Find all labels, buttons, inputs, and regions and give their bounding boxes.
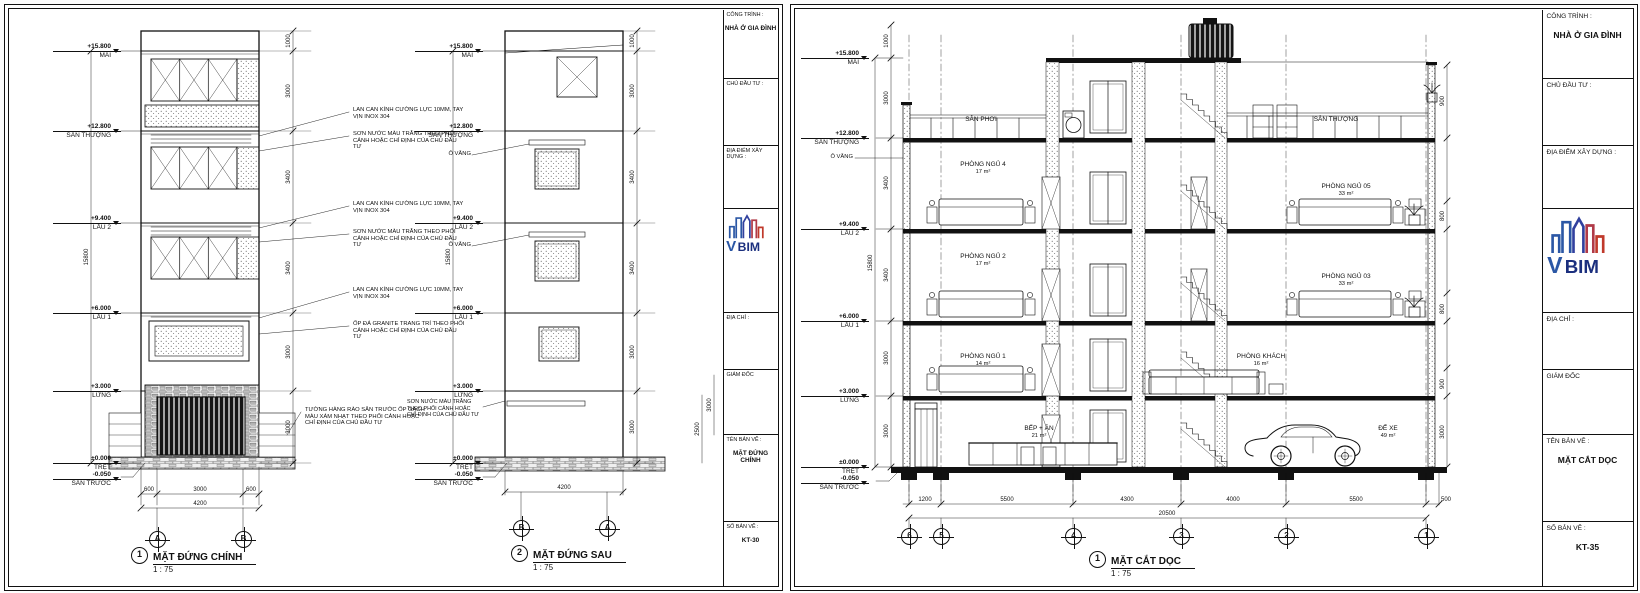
garage-door xyxy=(145,385,259,457)
section-linework: 1200 5500 4300 4000 5500 500 20500 1000 … xyxy=(791,5,1539,590)
tb-logo: V BIM xyxy=(724,209,778,313)
tb-drawing-name: TÊN BẢN VẼ : MẶT CẮT DỌC xyxy=(1543,435,1633,522)
room-label: BẾP + ĂN21 m² xyxy=(989,425,1089,440)
grid-bubble-b: B xyxy=(235,531,252,548)
svg-text:20500: 20500 xyxy=(1159,511,1176,517)
tb-drawing-no: SỐ BẢN VẼ : KT-30 xyxy=(724,522,778,585)
level-marker: +15.800MÁI xyxy=(53,43,121,60)
svg-text:800: 800 xyxy=(1440,303,1446,314)
vertical-dims-section xyxy=(872,22,1450,470)
note-railing: LAN CAN KÍNH CƯỜNG LỰC 10MM, TAY VỊN INO… xyxy=(353,107,465,120)
svg-text:3000: 3000 xyxy=(707,398,713,412)
svg-text:1200: 1200 xyxy=(918,497,932,503)
level-marker: -0.050SÂN TRƯỚC xyxy=(53,471,121,488)
svg-text:900: 900 xyxy=(1440,378,1446,389)
svg-text:1000: 1000 xyxy=(286,34,292,48)
fence-left xyxy=(109,413,141,457)
tb-location: ĐỊA ĐIỂM XÂY DỰNG : xyxy=(724,146,778,209)
window-band-terrace xyxy=(151,147,259,189)
room-label: ĐỂ XE49 m² xyxy=(1343,425,1433,440)
svg-text:3000: 3000 xyxy=(630,84,636,98)
level-marker: +6.000LẦU 1 xyxy=(801,313,869,330)
grid-bubble-a: A xyxy=(149,531,166,548)
grid-bubble-1: 1 xyxy=(1418,528,1435,545)
kitchen-counter xyxy=(969,443,1117,465)
drawing-canvas: { "tb": { "cong_trinh": "CÔNG TRÌNH :", … xyxy=(0,0,1640,593)
grid-bubble-4: 4 xyxy=(1065,528,1082,545)
tb-location: ĐỊA ĐIỂM XÂY DỰNG : xyxy=(1543,146,1633,209)
tb-client: CHỦ ĐẦU TƯ : xyxy=(724,79,778,146)
svg-text:1000: 1000 xyxy=(884,34,890,48)
svg-text:3400: 3400 xyxy=(884,176,890,190)
room-label: PHÒNG NGỦ 217 m² xyxy=(933,253,1033,268)
tb-project: CÔNG TRÌNH : NHÀ Ở GIA ĐÌNH xyxy=(1543,10,1633,79)
level-marker: +3.000LỬNG xyxy=(801,388,869,405)
level-marker: +9.400LẦU 2 xyxy=(53,215,121,232)
wall-left xyxy=(903,105,910,467)
svg-text:500: 500 xyxy=(1441,497,1452,503)
note-leaders xyxy=(259,112,349,435)
svg-text:3400: 3400 xyxy=(286,170,292,184)
wall-right xyxy=(1428,65,1435,467)
svg-text:4000: 4000 xyxy=(1226,497,1240,503)
bottom-dims-front xyxy=(138,467,262,531)
room-label: SÂN PHƠI xyxy=(931,116,1031,124)
svg-text:V: V xyxy=(726,238,736,253)
level-marker: +6.000LẦU 1 xyxy=(53,305,121,322)
tb-client: CHỦ ĐẦU TƯ : xyxy=(1543,79,1633,146)
level-marker: +3.000LỬNG xyxy=(53,383,121,400)
svg-text:4200: 4200 xyxy=(557,485,571,491)
core-wall xyxy=(1046,62,1059,467)
note-railing: LAN CAN KÍNH CƯỜNG LỰC 10MM, TAY VỊN INO… xyxy=(353,201,465,214)
room-label: PHÒNG KHÁCH16 m² xyxy=(1211,353,1311,368)
note-paint-rear: SƠN NƯỚC MÀU TRẮNG THEO PHỐI CẢNH HOẶC C… xyxy=(407,399,481,419)
tb-director: GIÁM ĐỐC xyxy=(1543,370,1633,435)
svg-text:5500: 5500 xyxy=(1000,497,1014,503)
grid-bubble-2: 2 xyxy=(1278,528,1295,545)
svg-text:3000: 3000 xyxy=(884,91,890,105)
washing-machine-icon xyxy=(1063,111,1084,138)
svg-text:3400: 3400 xyxy=(630,170,636,184)
tb-logo: V BIM xyxy=(1543,209,1633,313)
level-marker: +12.800SÂN THƯỢNG xyxy=(801,130,869,147)
svg-text:900: 900 xyxy=(1440,95,1446,106)
entry-gate xyxy=(915,403,937,467)
elevator-wall xyxy=(1132,62,1145,467)
grid-bubble-3: 3 xyxy=(1173,528,1190,545)
title-block: CÔNG TRÌNH : NHÀ Ở GIA ĐÌNH CHỦ ĐẦU TƯ :… xyxy=(723,10,778,586)
elevation-rear-drawing xyxy=(450,28,714,520)
svg-text:BIM: BIM xyxy=(737,240,759,253)
granite-panel xyxy=(149,317,251,361)
desk-symbols xyxy=(1405,199,1425,317)
stair-wall xyxy=(1215,62,1227,467)
level-marker: +12.800SÂN THƯỢNG xyxy=(53,123,121,140)
svg-text:3000: 3000 xyxy=(193,487,207,493)
svg-text:5500: 5500 xyxy=(1349,497,1363,503)
grid-bubble-a: A xyxy=(599,520,616,537)
svg-text:3000: 3000 xyxy=(630,345,636,359)
stone-band xyxy=(145,105,259,127)
tb-drawing-name: TÊN BẢN VẼ : MẶT ĐỨNG CHÍNH xyxy=(724,435,778,522)
note-railing: LAN CAN KÍNH CƯỜNG LỰC 10MM, TAY VỊN INO… xyxy=(353,287,465,300)
svg-text:3000: 3000 xyxy=(286,84,292,98)
svg-text:3400: 3400 xyxy=(286,261,292,275)
svg-text:600: 600 xyxy=(246,487,257,493)
svg-text:800: 800 xyxy=(1440,210,1446,221)
level-leaders-section xyxy=(855,58,903,481)
tb-address: ĐỊA CHỈ : xyxy=(1543,313,1633,370)
tb-project: CÔNG TRÌNH : NHÀ Ở GIA ĐÌNH xyxy=(724,10,778,79)
svg-text:3000: 3000 xyxy=(286,345,292,359)
svg-text:3000: 3000 xyxy=(286,420,292,434)
level-marker: -0.050SÂN TRƯỚC xyxy=(415,471,483,488)
svg-text:3000: 3000 xyxy=(884,351,890,365)
room-label: PHÒNG NGỦ 0333 m² xyxy=(1296,273,1396,288)
title-block: CÔNG TRÌNH : NHÀ Ở GIA ĐÌNH CHỦ ĐẦU TƯ :… xyxy=(1542,10,1633,586)
svg-text:2500: 2500 xyxy=(695,422,701,436)
level-marker: +9.400LẦU 2 xyxy=(801,221,869,238)
drawing-title-elev-rear: 2 MẶT ĐỨNG SAU1 : 75 xyxy=(511,545,626,572)
level-marker: +15.800MÁI xyxy=(415,43,483,60)
window-band-roof xyxy=(151,59,259,101)
svg-text:1000: 1000 xyxy=(630,34,636,48)
ovang-label: Ô VĂNG xyxy=(437,151,471,158)
fence-right xyxy=(259,413,295,457)
level-marker: ±0.000TRỆT xyxy=(801,459,869,476)
tb-director: GIÁM ĐỐC xyxy=(724,370,778,435)
water-tank xyxy=(1189,18,1233,58)
sheet-elevations: 600 3000 600 4200 1000 3000 3400 3400 30… xyxy=(4,4,783,591)
room-label: PHÒNG NGỦ 114 m² xyxy=(933,353,1033,368)
level-marker: +6.000LẦU 1 xyxy=(415,305,483,322)
level-marker: +3.000LỬNG xyxy=(415,383,483,400)
level-leaders-rear xyxy=(483,51,507,477)
vbim-logo: V BIM xyxy=(724,209,770,253)
tb-address: ĐỊA CHỈ : xyxy=(724,313,778,370)
note-paint: SƠN NƯỚC MÀU TRẮNG THEO PHỐI CẢNH HOẶC C… xyxy=(353,131,465,151)
level-marker: ±0.000TRỆT xyxy=(53,455,121,472)
level-marker: ±0.000TRỆT xyxy=(415,455,483,472)
ovang-label: Ô VĂNG xyxy=(807,154,853,161)
drawing-title-section: 1 MẶT CẮT DỌC1 : 75 xyxy=(1089,551,1195,578)
grid-bubble-5: 5 xyxy=(933,528,950,545)
tb-drawing-no: SỐ BẢN VẼ : KT-35 xyxy=(1543,522,1633,585)
svg-text:15800: 15800 xyxy=(868,254,874,271)
room-label: SÂN THƯỢNG xyxy=(1286,116,1386,124)
note-granite: ỐP ĐÁ GRANITE TRANG TRÍ THEO PHỐI CẢNH H… xyxy=(353,321,465,341)
ovang-label: Ô VĂNG xyxy=(437,242,471,249)
sheet-section: 1200 5500 4300 4000 5500 500 20500 1000 … xyxy=(790,4,1638,591)
svg-text:15800: 15800 xyxy=(446,248,452,265)
grid-bubble-b: B xyxy=(513,520,530,537)
svg-text:3400: 3400 xyxy=(884,268,890,282)
svg-text:600: 600 xyxy=(144,487,155,493)
vbim-logo: V BIM xyxy=(1543,209,1615,275)
room-label: PHÒNG NGỦ 0533 m² xyxy=(1296,183,1396,198)
level-marker: -0.050SÂN TRƯỚC xyxy=(801,475,869,492)
svg-text:3000: 3000 xyxy=(884,424,890,438)
svg-text:15800: 15800 xyxy=(84,248,90,265)
sofa-symbol xyxy=(1143,370,1283,394)
elevation-front-drawing xyxy=(88,28,349,531)
svg-text:BIM: BIM xyxy=(1564,256,1598,275)
svg-text:4200: 4200 xyxy=(193,501,207,507)
drawing-title-elev-front: 1 MẶT ĐỨNG CHÍNH1 : 75 xyxy=(131,547,256,574)
svg-text:3000: 3000 xyxy=(630,420,636,434)
window-band-floor2 xyxy=(151,237,259,279)
grid-bubble-6: 6 xyxy=(901,528,918,545)
level-marker: +15.800MÁI xyxy=(801,50,869,67)
svg-text:3000: 3000 xyxy=(1440,425,1446,439)
svg-text:V: V xyxy=(1547,252,1563,275)
svg-text:3400: 3400 xyxy=(630,261,636,275)
room-label: PHÒNG NGỦ 417 m² xyxy=(933,161,1033,176)
bottom-dims-rear xyxy=(502,471,626,520)
svg-text:4300: 4300 xyxy=(1120,497,1134,503)
